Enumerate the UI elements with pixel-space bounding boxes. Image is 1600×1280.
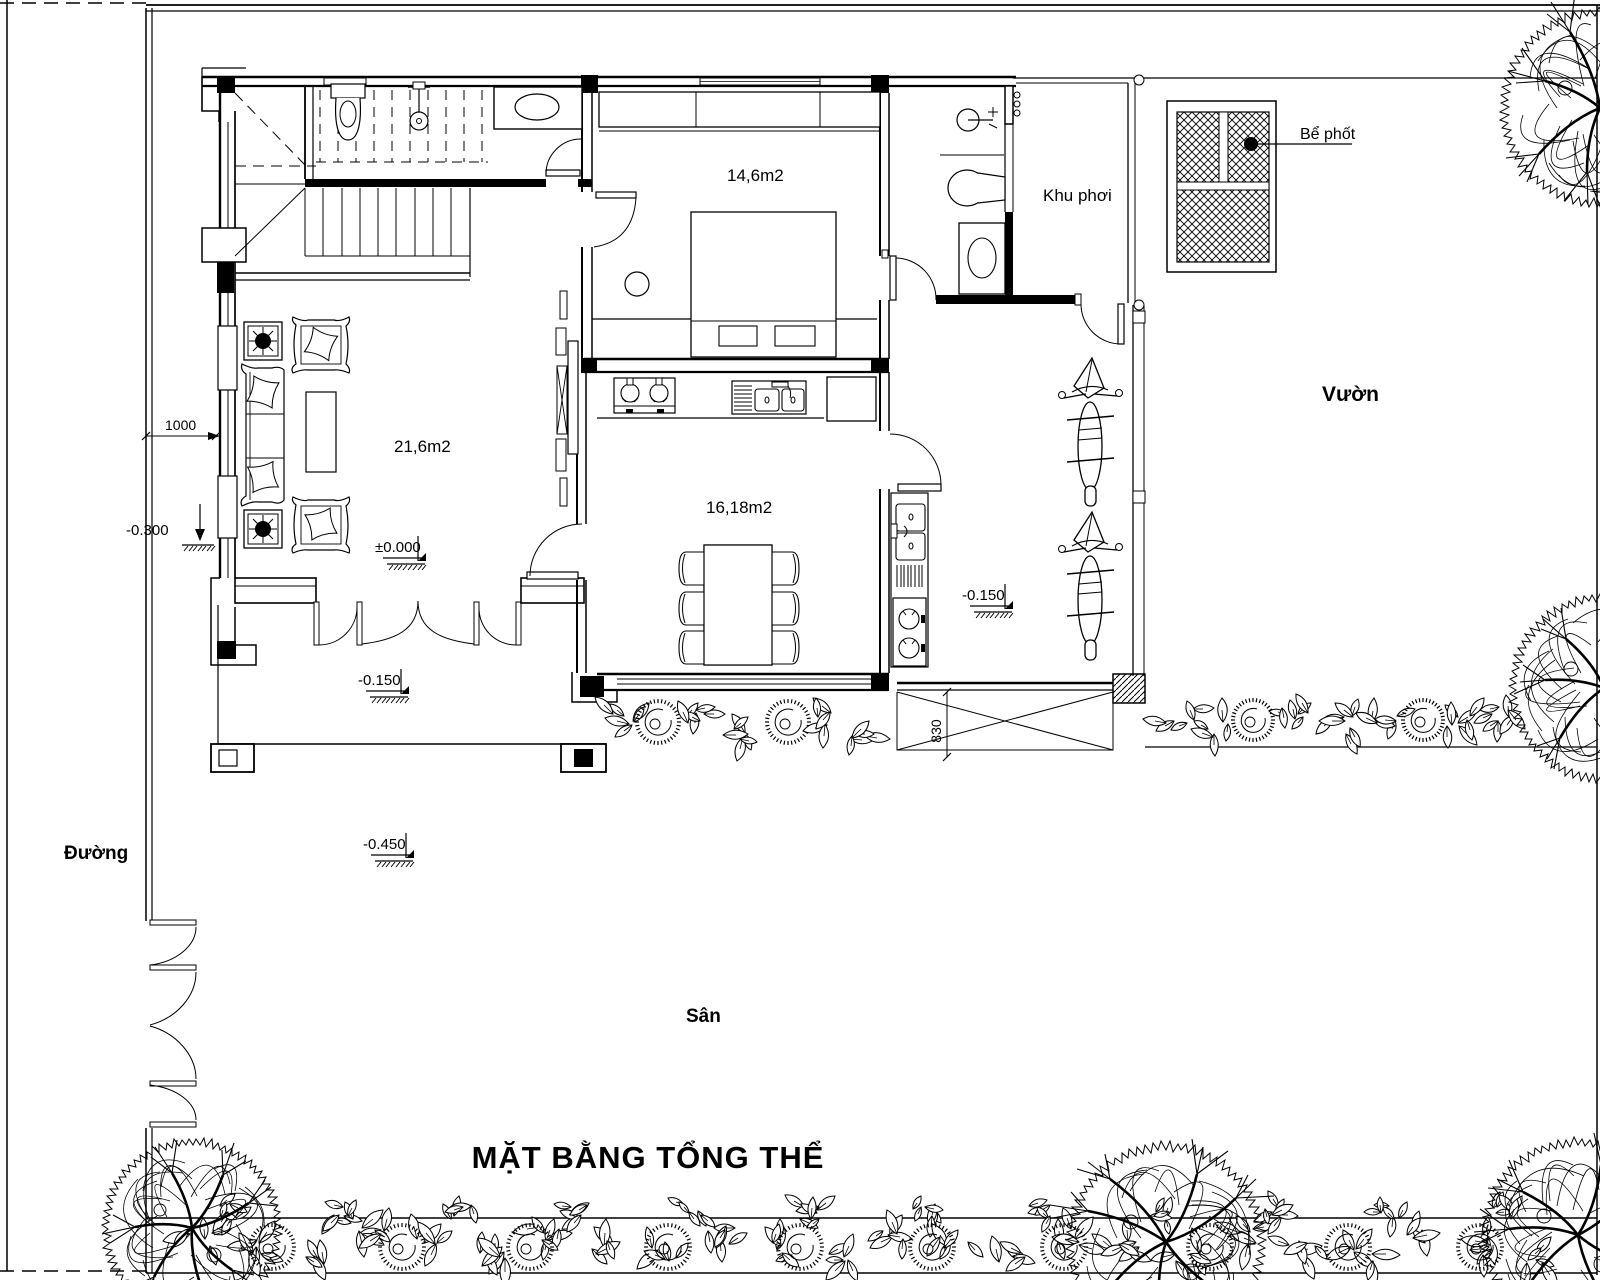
svg-text:21,6m2: 21,6m2 [394, 437, 451, 456]
svg-text:-0.150: -0.150 [358, 672, 401, 689]
svg-text:MẶT BẰNG TỔNG THỂ: MẶT BẰNG TỔNG THỂ [472, 1139, 825, 1175]
svg-text:830: 830 [928, 719, 944, 743]
svg-text:Bể phốt: Bể phốt [1300, 125, 1356, 143]
svg-text:-0.450: -0.450 [363, 836, 406, 853]
svg-text:-0.150: -0.150 [962, 587, 1005, 604]
svg-text:Vườn: Vườn [1322, 383, 1379, 406]
svg-text:1000: 1000 [165, 417, 196, 433]
svg-text:-0.300: -0.300 [126, 522, 169, 539]
svg-text:14,6m2: 14,6m2 [727, 166, 784, 185]
svg-text:Sân: Sân [686, 1006, 721, 1027]
svg-text:Đường: Đường [64, 843, 128, 864]
svg-text:Khu phơi: Khu phơi [1043, 186, 1112, 205]
svg-text:±0.000: ±0.000 [375, 539, 421, 556]
svg-text:16,18m2: 16,18m2 [706, 498, 772, 517]
